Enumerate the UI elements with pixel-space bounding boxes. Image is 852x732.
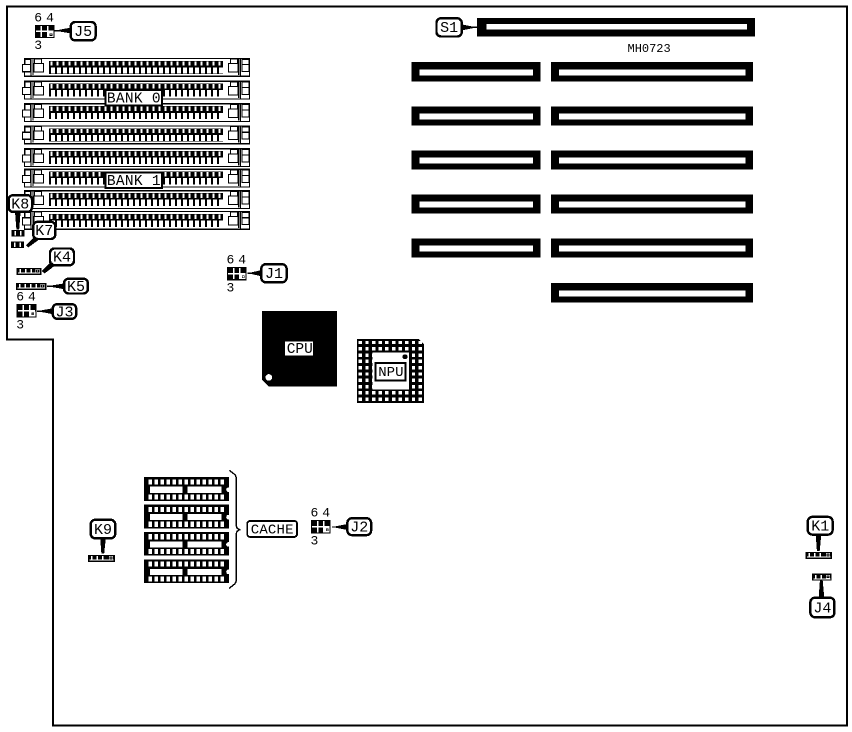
svg-text:K4: K4 [53, 250, 71, 267]
svg-text:6: 6 [16, 290, 24, 305]
svg-text:J3: J3 [55, 304, 73, 321]
svg-text:6: 6 [34, 10, 42, 25]
svg-text:K9: K9 [94, 522, 112, 539]
svg-text:CACHE: CACHE [251, 523, 294, 539]
svg-text:4: 4 [238, 253, 246, 268]
svg-text:K8: K8 [11, 196, 29, 213]
svg-text:K1: K1 [811, 519, 829, 536]
svg-text:4: 4 [46, 10, 54, 25]
svg-text:3: 3 [227, 280, 235, 295]
svg-text:4: 4 [322, 506, 330, 521]
svg-text:K7: K7 [35, 223, 53, 240]
svg-text:K5: K5 [67, 279, 85, 296]
svg-text:BANK 1: BANK 1 [107, 174, 161, 190]
svg-text:6: 6 [311, 506, 319, 521]
svg-text:3: 3 [311, 534, 319, 549]
svg-text:4: 4 [28, 290, 36, 305]
svg-text:3: 3 [16, 318, 24, 333]
svg-text:CPU: CPU [287, 342, 313, 358]
svg-text:J5: J5 [74, 24, 92, 41]
svg-text:J1: J1 [265, 266, 283, 283]
svg-text:NPU: NPU [378, 365, 403, 381]
svg-text:MH0723: MH0723 [628, 42, 671, 56]
svg-text:6: 6 [227, 253, 235, 268]
svg-text:BANK 0: BANK 0 [107, 91, 161, 107]
svg-text:S1: S1 [440, 20, 458, 37]
svg-text:3: 3 [34, 38, 42, 53]
svg-text:J4: J4 [813, 600, 831, 617]
svg-text:J2: J2 [350, 519, 368, 536]
